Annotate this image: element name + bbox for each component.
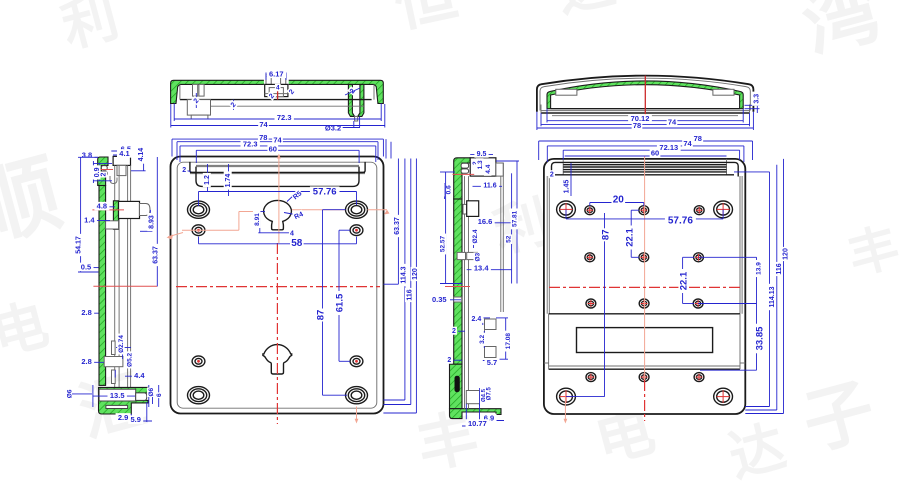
svg-text:1.2: 1.2: [204, 175, 211, 185]
svg-text:Ø3.2: Ø3.2: [325, 124, 341, 133]
svg-text:120: 120: [783, 248, 790, 260]
svg-text:4.1: 4.1: [119, 149, 129, 158]
svg-text:1.4: 1.4: [84, 215, 95, 224]
svg-text:3.3: 3.3: [753, 94, 760, 104]
svg-text:2: 2: [452, 328, 456, 335]
svg-text:72.3: 72.3: [277, 113, 292, 122]
svg-text:60: 60: [651, 149, 659, 158]
svg-text:1.74: 1.74: [225, 174, 232, 188]
svg-text:52: 52: [506, 235, 513, 243]
svg-text:Ø5.2: Ø5.2: [127, 352, 134, 366]
svg-text:74: 74: [259, 120, 268, 129]
svg-text:116: 116: [406, 289, 413, 300]
svg-text:57.76: 57.76: [668, 216, 693, 227]
svg-text:63.37: 63.37: [394, 217, 401, 235]
svg-text:57.76: 57.76: [313, 187, 337, 198]
svg-text:57.81: 57.81: [512, 210, 519, 227]
svg-text:Ø2.4: Ø2.4: [472, 229, 479, 243]
svg-text:Ø2.74: Ø2.74: [118, 335, 125, 353]
svg-text:114.3: 114.3: [400, 266, 407, 283]
svg-text:17.08: 17.08: [505, 333, 512, 350]
svg-text:1.3: 1.3: [477, 160, 484, 169]
svg-text:72.13: 72.13: [659, 143, 678, 152]
svg-text:74: 74: [683, 139, 692, 148]
svg-text:5.9: 5.9: [130, 415, 140, 424]
svg-text:13.4: 13.4: [474, 264, 489, 273]
svg-text:3.2: 3.2: [479, 335, 486, 344]
svg-text:78: 78: [694, 134, 702, 143]
svg-text:116: 116: [776, 263, 783, 274]
svg-text:4: 4: [290, 231, 294, 238]
svg-text:2.8: 2.8: [81, 357, 91, 366]
svg-text:16.6: 16.6: [478, 217, 493, 226]
svg-text:22.1: 22.1: [624, 228, 635, 247]
svg-text:60: 60: [269, 144, 277, 153]
svg-text:0.35: 0.35: [432, 295, 447, 304]
svg-text:4.4: 4.4: [485, 164, 492, 173]
svg-text:0.6: 0.6: [446, 185, 453, 194]
svg-text:5.7: 5.7: [487, 358, 497, 367]
svg-text:Ø6: Ø6: [148, 387, 155, 396]
svg-text:2.9: 2.9: [118, 413, 128, 422]
svg-text:72.3: 72.3: [243, 140, 258, 149]
svg-text:87: 87: [316, 310, 327, 321]
svg-text:74: 74: [668, 118, 677, 127]
svg-text:8.93: 8.93: [149, 215, 156, 229]
svg-text:4.8: 4.8: [97, 202, 107, 211]
svg-text:6: 6: [156, 393, 163, 397]
svg-text:52.57: 52.57: [440, 235, 447, 252]
svg-text:33.85: 33.85: [755, 326, 766, 350]
svg-text:4.14: 4.14: [138, 148, 145, 162]
svg-text:20: 20: [613, 194, 625, 205]
svg-text:4.4: 4.4: [134, 371, 145, 380]
svg-text:2.8: 2.8: [81, 308, 91, 317]
svg-text:78: 78: [633, 121, 641, 130]
svg-text:8.91: 8.91: [254, 213, 261, 226]
svg-text:2: 2: [182, 167, 186, 174]
svg-text:Ø7.5: Ø7.5: [487, 387, 493, 401]
svg-text:1.45: 1.45: [564, 180, 571, 194]
svg-text:63.37: 63.37: [152, 246, 159, 264]
svg-text:58: 58: [291, 238, 303, 249]
svg-text:2: 2: [447, 357, 451, 364]
svg-text:54.17: 54.17: [75, 236, 82, 254]
svg-text:6.17: 6.17: [269, 69, 284, 78]
svg-text:9.5: 9.5: [477, 151, 487, 158]
svg-text:13.5: 13.5: [110, 391, 125, 400]
svg-text:114.13: 114.13: [769, 286, 776, 307]
svg-text:Ø3: Ø3: [474, 252, 481, 261]
svg-text:2.4: 2.4: [472, 316, 482, 323]
svg-text:13.9: 13.9: [755, 262, 762, 275]
svg-text:4: 4: [276, 85, 280, 92]
svg-text:87: 87: [601, 230, 612, 241]
svg-text:10.77: 10.77: [468, 419, 487, 428]
svg-text:2: 2: [550, 172, 554, 179]
svg-text:61.5: 61.5: [335, 293, 346, 312]
svg-text:22.1: 22.1: [679, 271, 690, 290]
svg-text:120: 120: [412, 268, 419, 280]
svg-text:74: 74: [273, 136, 282, 145]
svg-text:3.8: 3.8: [82, 150, 92, 159]
svg-text:11.6: 11.6: [483, 183, 496, 190]
svg-text:78: 78: [259, 133, 267, 142]
svg-text:0.5: 0.5: [81, 262, 91, 271]
svg-text:2: 2: [100, 172, 107, 176]
